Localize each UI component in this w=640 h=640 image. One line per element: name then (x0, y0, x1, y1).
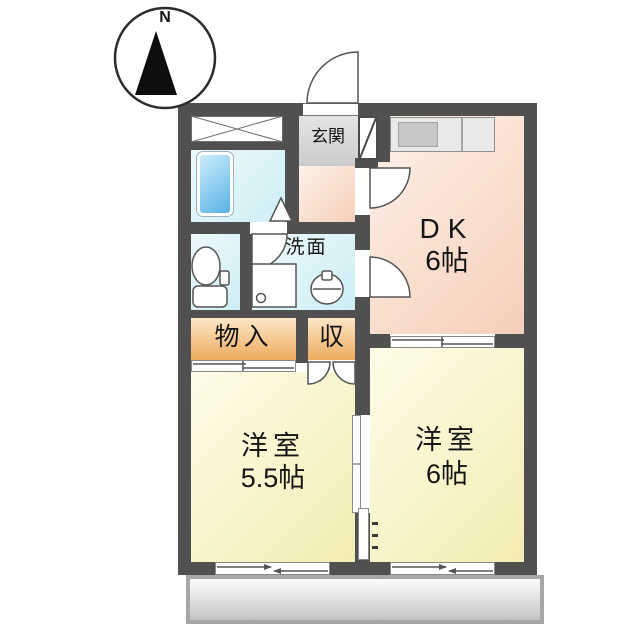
dk-door2-opening (355, 250, 370, 297)
bathtub (197, 152, 233, 216)
wall-below-servicebox (191, 142, 299, 150)
bedroom-small-size-label: 5.5帖 (191, 464, 355, 492)
wall-dk6-left (370, 334, 390, 348)
wall-bottom-a (178, 562, 215, 575)
dk-door1-opening (355, 168, 370, 215)
bedroom-divider-pocket-panel (358, 508, 369, 560)
toilet-room-floor (191, 234, 240, 310)
window-bedroom-small (215, 562, 330, 575)
storage-label: 物入 (191, 324, 296, 350)
washroom-label: 洗面 (258, 238, 355, 258)
dk-bedroom-sliding-door (390, 336, 495, 348)
wall-bottom-c (495, 562, 537, 575)
wall-right (524, 103, 537, 575)
shoe-cabinet (358, 116, 378, 160)
service-box (191, 116, 283, 142)
closet-label: 収 (308, 324, 355, 350)
wall-servicebox-right (283, 116, 299, 142)
wall-mid-left (191, 222, 250, 234)
wall-bath-corridor (285, 150, 299, 222)
entrance-door-sill (303, 103, 358, 116)
entrance-door-icon (307, 52, 358, 103)
corridor-floor (299, 166, 355, 222)
wall-washroom-bottom (191, 310, 370, 318)
window-bedroom-large (390, 562, 495, 575)
bedroom-small-label: 洋室 (191, 432, 355, 460)
wall-bottom-b (330, 562, 390, 575)
wall-cabinet-right (378, 116, 390, 162)
washroom-door-opening (250, 222, 287, 234)
dk-size-label: 6帖 (370, 246, 524, 275)
storage-sliding-doors (191, 360, 296, 372)
wall-west-b (355, 215, 370, 250)
bedroom-large-floor (370, 348, 524, 562)
balcony (186, 575, 544, 624)
entrance-step-line (299, 164, 355, 166)
wall-top-right (358, 103, 537, 116)
floor-plan: N 玄関 DK 6帖 洗面 物入 収 洋室 5.5帖 洋室 6帖 (0, 0, 640, 640)
dk-label: DK (370, 214, 524, 243)
wall-dk6-right (495, 334, 524, 348)
wall-top-left (178, 103, 305, 116)
entrance-label: 玄関 (299, 128, 357, 146)
wall-left (178, 103, 191, 575)
wall-toilet-divider (240, 234, 252, 310)
wall-west-c (355, 297, 370, 415)
stove (398, 122, 438, 147)
wall-closet-divider (296, 318, 308, 363)
wall-mid-right (287, 222, 355, 234)
bedroom-large-label: 洋室 (370, 426, 524, 454)
bedroom-large-size-label: 6帖 (370, 460, 524, 488)
compass-north-label: N (150, 10, 180, 27)
